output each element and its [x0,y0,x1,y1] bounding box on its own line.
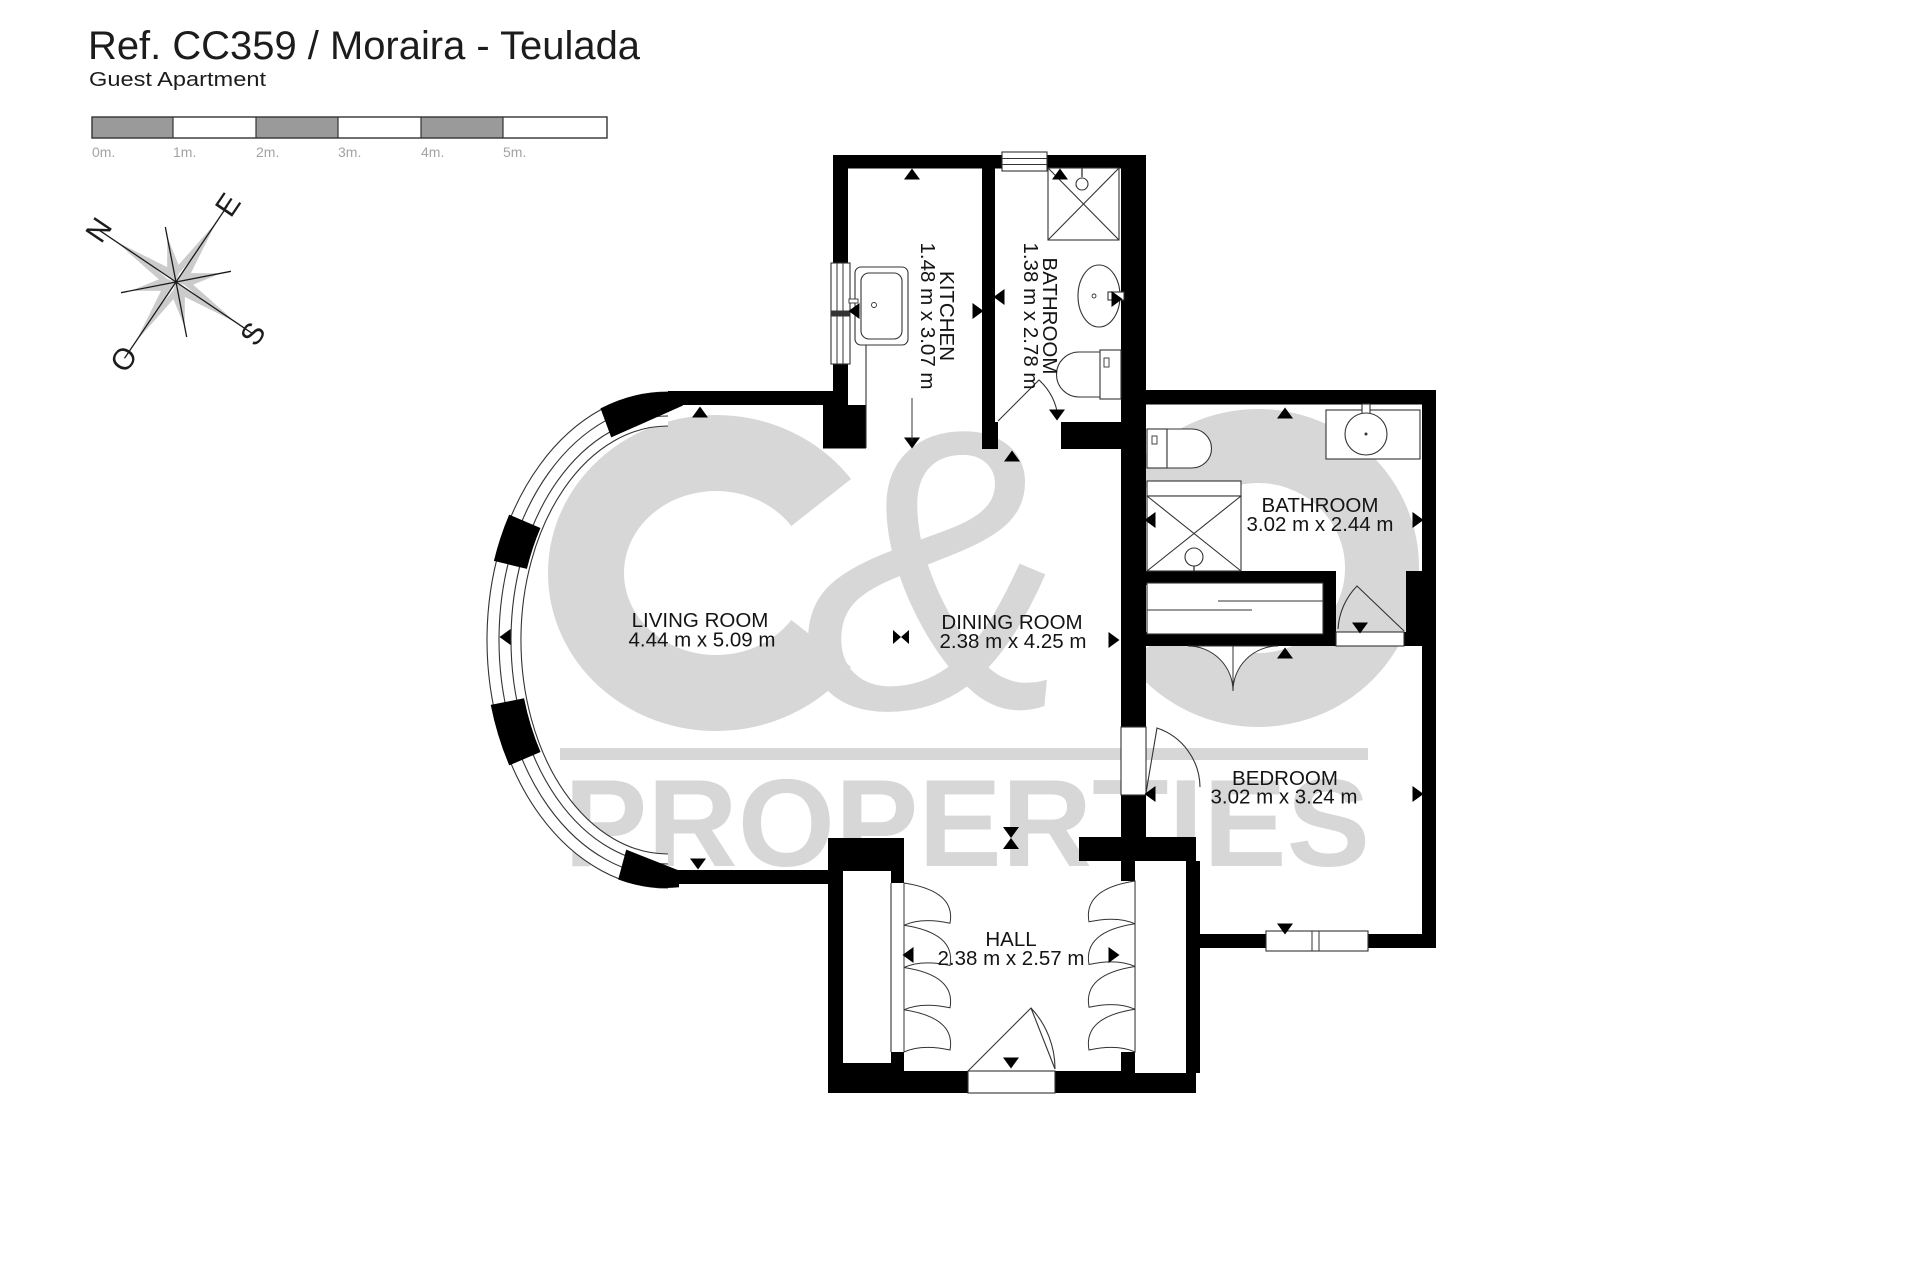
svg-text:2.38 m x 2.57 m: 2.38 m x 2.57 m [938,947,1085,970]
svg-text:1m.: 1m. [173,144,196,160]
svg-text:1.48 m x 3.07 m: 1.48 m x 3.07 m [916,243,939,390]
svg-text:Ref. CC359 / Moraira - Teulada: Ref. CC359 / Moraira - Teulada [88,24,641,68]
svg-text:3.02 m x 3.24 m: 3.02 m x 3.24 m [1211,786,1358,809]
svg-text:3.02 m x 2.44 m: 3.02 m x 2.44 m [1247,513,1394,536]
svg-text:2m.: 2m. [256,144,279,160]
svg-text:0m.: 0m. [92,144,115,160]
svg-text:5m.: 5m. [503,144,526,160]
svg-text:1.38 m x 2.78 m: 1.38 m x 2.78 m [1019,243,1042,390]
svg-text:3m.: 3m. [338,144,361,160]
svg-text:4m.: 4m. [421,144,444,160]
svg-text:Guest Apartment: Guest Apartment [89,69,267,91]
svg-text:2.38 m x 4.25 m: 2.38 m x 4.25 m [940,630,1087,653]
svg-text:4.44 m x 5.09 m: 4.44 m x 5.09 m [629,629,776,652]
